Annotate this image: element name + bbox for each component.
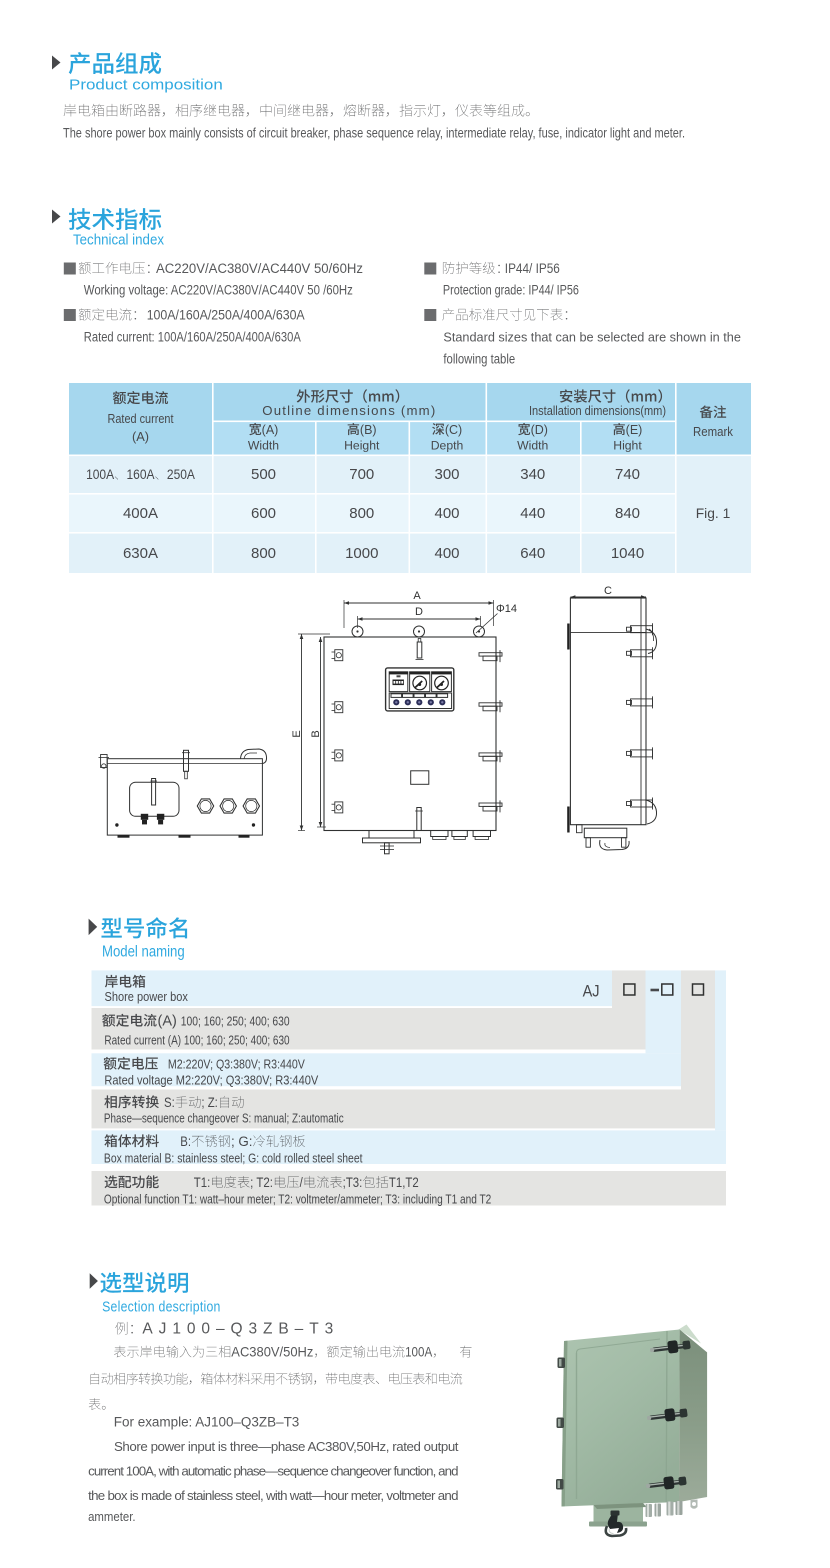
svg-text:640: 640 xyxy=(520,545,545,562)
svg-text:AJ: AJ xyxy=(583,983,600,1001)
svg-text:100; 160; 250; 400; 630: 100; 160; 250; 400; 630 xyxy=(181,1014,290,1029)
svg-text:ammeter.: ammeter. xyxy=(88,1509,135,1524)
svg-text:100A: 100A xyxy=(86,467,114,483)
svg-text:(A): (A) xyxy=(158,1014,177,1030)
svg-text:250A: 250A xyxy=(167,467,195,483)
svg-text:Installation dimensions(mm): Installation dimensions(mm) xyxy=(529,403,666,418)
svg-text:(A): (A) xyxy=(132,429,149,444)
svg-text:; T2:: ; T2: xyxy=(250,1175,273,1190)
svg-text:Width: Width xyxy=(248,439,279,453)
svg-text:T1,T2: T1,T2 xyxy=(389,1175,419,1190)
svg-text:700: 700 xyxy=(349,466,374,483)
svg-text:Rated voltage M2:220V; Q3:38: Rated voltage M2:220V; Q3:380V; R3:440V xyxy=(104,1073,318,1088)
svg-text:For example: AJ100–Q3ZB–T3: For example: AJ100–Q3ZB–T3 xyxy=(114,1415,299,1430)
svg-text:; Z:: ; Z: xyxy=(201,1095,217,1110)
svg-text:; G:: ; G: xyxy=(231,1134,253,1149)
svg-text:B:: B: xyxy=(180,1134,191,1149)
svg-text:Rated current: 100A/160A/250A/: Rated current: 100A/160A/250A/400A/630A xyxy=(84,330,301,345)
svg-text:S:: S: xyxy=(164,1095,175,1110)
svg-text:AJ100–Q3ZB–T3: AJ100–Q3ZB–T3 xyxy=(142,1321,333,1338)
svg-text:following table: following table xyxy=(443,352,515,367)
svg-text:Selection description: Selection description xyxy=(102,1299,221,1316)
svg-text:Outline dimensions (mm): Outline dimensions (mm) xyxy=(262,403,435,418)
svg-text:current 100A, with automatic p: current 100A, with automatic phase—seque… xyxy=(88,1464,458,1479)
svg-text:100A/160A/250A/400A/630A: 100A/160A/250A/400A/630A xyxy=(147,308,305,324)
svg-text:1000: 1000 xyxy=(345,545,378,562)
svg-text:D: D xyxy=(415,606,423,618)
svg-text:Box material B: stainless s: Box material B: stainless steel; G: cold… xyxy=(104,1151,363,1166)
svg-text:800: 800 xyxy=(251,545,276,562)
svg-text:Rated current: Rated current xyxy=(108,411,174,426)
svg-text:(A): (A) xyxy=(262,423,279,437)
svg-text:Technical index: Technical index xyxy=(73,232,164,249)
svg-text:Width: Width xyxy=(517,439,548,453)
svg-text:500: 500 xyxy=(251,466,276,483)
svg-text:Model naming: Model naming xyxy=(102,944,185,961)
svg-text:800: 800 xyxy=(349,505,374,522)
svg-text:Depth: Depth xyxy=(431,439,464,453)
svg-text:Working voltage: AC220V/AC380V: Working voltage: AC220V/AC380V/AC440V 50… xyxy=(84,283,353,298)
svg-text:E: E xyxy=(291,730,303,737)
svg-text:(B): (B) xyxy=(360,423,377,437)
svg-text:600: 600 xyxy=(251,505,276,522)
svg-text:Shore power box: Shore power box xyxy=(105,989,189,1004)
svg-text:840: 840 xyxy=(615,505,640,522)
svg-text:100A: 100A xyxy=(405,1345,433,1360)
svg-text:;T3:: ;T3: xyxy=(343,1175,363,1190)
svg-text:(D): (D) xyxy=(531,423,548,437)
svg-text:Φ14: Φ14 xyxy=(496,603,517,615)
svg-text:Remark: Remark xyxy=(693,424,734,439)
svg-text:Fig. 1: Fig. 1 xyxy=(696,506,731,521)
svg-text:300: 300 xyxy=(434,466,459,483)
svg-text:C: C xyxy=(604,585,612,597)
svg-text:The shore power box mainly con: The shore power box mainly consists of c… xyxy=(63,126,685,141)
svg-text:(C): (C) xyxy=(445,423,462,437)
svg-text:Height: Height xyxy=(344,439,380,453)
svg-text:400A: 400A xyxy=(123,505,158,522)
svg-text:740: 740 xyxy=(615,466,640,483)
svg-text:the box is made of stainless s: the box is made of stainless steel, with… xyxy=(88,1488,458,1503)
svg-text:T1:: T1: xyxy=(194,1175,210,1190)
svg-text:Standard sizes that can be sel: Standard sizes that can be selected are … xyxy=(443,331,741,345)
svg-text:B: B xyxy=(310,730,322,737)
svg-text:(E): (E) xyxy=(626,423,643,437)
svg-text:IP44/ IP56: IP44/ IP56 xyxy=(505,261,560,277)
svg-text:AC380V/50Hz: AC380V/50Hz xyxy=(231,1345,313,1360)
svg-text:A: A xyxy=(413,590,421,602)
svg-text:400: 400 xyxy=(434,505,459,522)
svg-text:Optional function T1: watt–: Optional function T1: watt–hour meter; T… xyxy=(104,1192,491,1207)
svg-text:1040: 1040 xyxy=(611,545,644,562)
svg-text:340: 340 xyxy=(520,466,545,483)
svg-text:AC220V/AC380V/AC440V 50/60Hz: AC220V/AC380V/AC440V 50/60Hz xyxy=(156,261,363,277)
svg-text:Phase—sequence changeover S:: Phase—sequence changeover S: manual; Z:a… xyxy=(104,1111,344,1126)
svg-text:Hight: Hight xyxy=(613,439,642,453)
svg-text:Shore power input is three: Shore power input is three—phase AC380V,… xyxy=(114,1439,459,1454)
svg-text:Product composition: Product composition xyxy=(69,78,223,94)
svg-text:Rated current (A) 100; 160; 25: Rated current (A) 100; 160; 250; 400; 63… xyxy=(104,1033,289,1048)
svg-text:440: 440 xyxy=(520,505,545,522)
svg-text:/: / xyxy=(300,1175,303,1190)
svg-text:630A: 630A xyxy=(123,545,158,562)
svg-text:M2:220V; Q3:380V; R3:440V: M2:220V; Q3:380V; R3:440V xyxy=(168,1057,305,1072)
svg-text:400: 400 xyxy=(434,545,459,562)
svg-text:Protection grade: IP44/ IP56: Protection grade: IP44/ IP56 xyxy=(443,283,579,298)
svg-text:160A: 160A xyxy=(126,467,154,483)
